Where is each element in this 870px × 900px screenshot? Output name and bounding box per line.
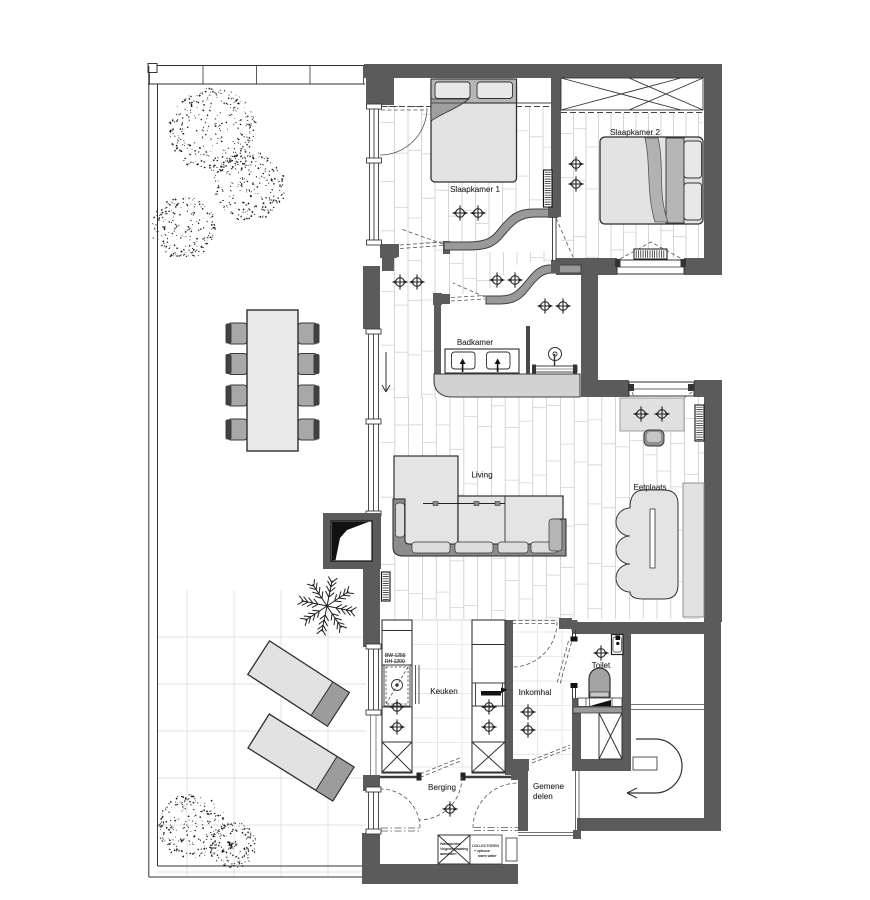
svg-text:Slaapkamer 1: Slaapkamer 1 — [450, 185, 500, 194]
svg-text:Wasmachine: Wasmachine — [440, 842, 461, 846]
svg-text:Badkamer: Badkamer — [457, 338, 493, 347]
svg-text:Slaapkamer 2: Slaapkamer 2 — [610, 128, 660, 137]
svg-text:delen: delen — [533, 792, 553, 801]
svg-text:aansluiten: aansluiten — [440, 852, 456, 856]
svg-text:Inkomhal: Inkomhal — [519, 688, 552, 697]
svg-text:Living: Living — [471, 471, 492, 480]
svg-text:Keuken: Keuken — [430, 687, 457, 696]
svg-text:+ opbouw: + opbouw — [474, 849, 490, 853]
svg-text:Berging: Berging — [428, 783, 456, 792]
svg-text:COLLECTOREN: COLLECTOREN — [472, 844, 499, 848]
svg-text:Eetplaats: Eetplaats — [634, 483, 667, 492]
svg-text:Volgens plaatsing: Volgens plaatsing — [440, 847, 468, 851]
svg-text:warm water: warm water — [478, 854, 497, 858]
svg-text:Toilet: Toilet — [592, 661, 611, 670]
svg-text:Gemene: Gemene — [533, 782, 565, 791]
svg-text:RH 1200: RH 1200 — [385, 659, 405, 665]
